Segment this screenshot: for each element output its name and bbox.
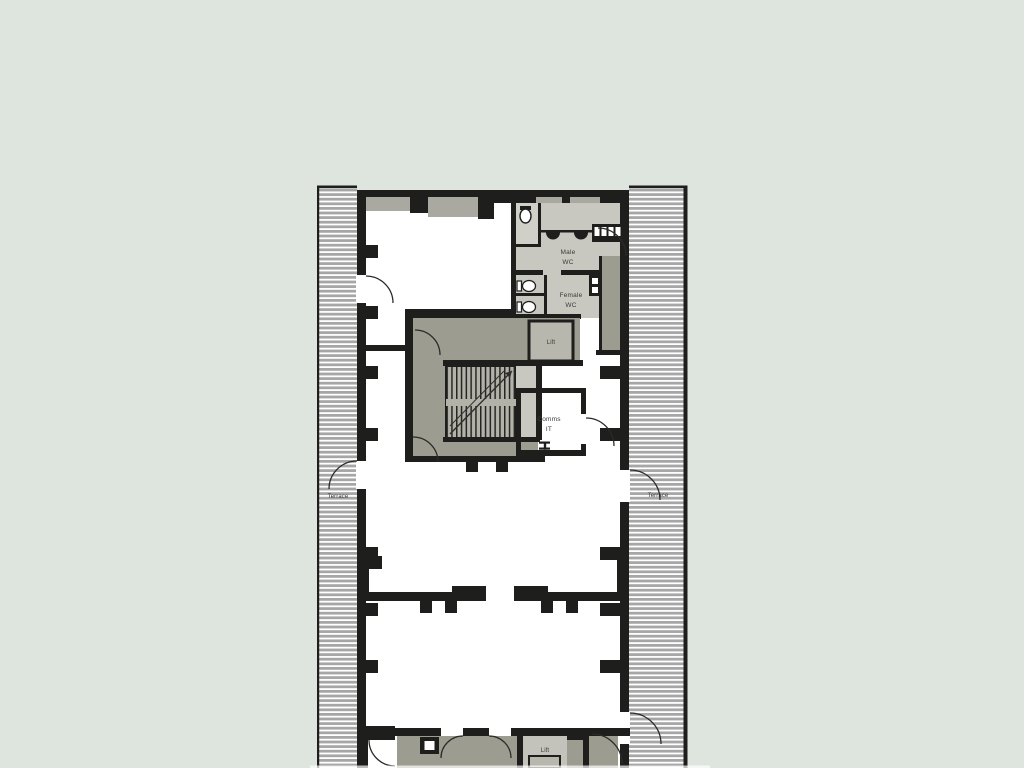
floor-plan-drawing: Terrace Terrace <box>0 0 1024 768</box>
urinal-icon <box>520 206 531 223</box>
terrace-right-label: Terrace <box>648 493 669 499</box>
counter-line <box>541 230 593 233</box>
lift-lower-room: Lift <box>523 736 567 768</box>
lift-upper-label: Lift <box>547 340 556 346</box>
toilet-icon <box>517 302 536 313</box>
lift-upper-room: Lift <box>516 318 580 364</box>
comms-it-label-line2: IT <box>546 426 552 433</box>
building-shell: Male WC <box>329 190 661 768</box>
female-wc-label-line1: Female <box>560 292 583 299</box>
terrace-right-border <box>684 187 688 768</box>
terrace-left-border <box>317 187 319 768</box>
terrace-strip-left: Terrace <box>317 186 357 768</box>
male-wc-label-line2: WC <box>562 259 573 266</box>
toilet-icon <box>517 281 536 292</box>
female-wc-label-line2: WC <box>565 302 576 309</box>
terrace-left-top-border <box>317 186 357 189</box>
bottom-core: Lift <box>368 728 630 768</box>
east-corridor <box>602 256 620 353</box>
male-wc-label-line1: Male <box>561 249 576 256</box>
sink-row-icon <box>592 224 622 242</box>
terrace-right-hatch <box>629 187 685 768</box>
comms-it-label-line1: Comms <box>537 416 561 423</box>
lift-lower-label: Lift <box>541 748 550 754</box>
terrace-right-top-border <box>629 186 688 189</box>
terrace-strip-right: Terrace <box>629 186 688 768</box>
terrace-left-hatch <box>319 187 358 768</box>
terrace-left-label: Terrace <box>328 494 349 500</box>
page-background: Terrace Terrace <box>0 0 1024 768</box>
niche <box>420 737 439 754</box>
